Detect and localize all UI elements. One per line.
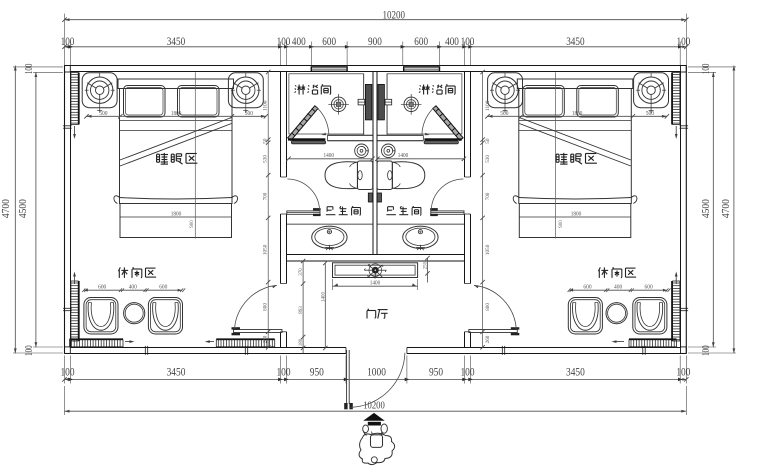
svg-text:800: 800 bbox=[485, 303, 491, 311]
svg-text:500: 500 bbox=[99, 111, 107, 117]
svg-text:100: 100 bbox=[461, 36, 475, 48]
svg-text:400: 400 bbox=[129, 285, 137, 291]
svg-text:100: 100 bbox=[677, 36, 691, 48]
svg-text:100: 100 bbox=[460, 364, 474, 378]
svg-text:370: 370 bbox=[298, 268, 304, 276]
svg-text:250: 250 bbox=[423, 261, 429, 269]
svg-text:1100: 1100 bbox=[485, 100, 491, 111]
svg-text:4500: 4500 bbox=[701, 199, 712, 218]
svg-text:100: 100 bbox=[61, 36, 75, 48]
svg-text:3450: 3450 bbox=[167, 364, 186, 378]
svg-text:1800: 1800 bbox=[171, 111, 182, 117]
svg-text:800: 800 bbox=[263, 303, 269, 311]
svg-text:400: 400 bbox=[445, 36, 459, 48]
svg-text:100: 100 bbox=[277, 36, 291, 48]
svg-text:10200: 10200 bbox=[363, 401, 385, 412]
svg-text:600: 600 bbox=[98, 285, 106, 291]
svg-text:1050: 1050 bbox=[485, 244, 491, 255]
svg-text:900: 900 bbox=[368, 36, 382, 48]
svg-text:900: 900 bbox=[189, 220, 195, 228]
svg-text:260: 260 bbox=[263, 335, 269, 343]
svg-text:700: 700 bbox=[485, 192, 491, 200]
svg-text:50: 50 bbox=[263, 138, 269, 144]
svg-text:1800: 1800 bbox=[572, 111, 583, 117]
svg-text:180: 180 bbox=[298, 338, 304, 346]
svg-text:500: 500 bbox=[245, 111, 253, 117]
svg-text:950: 950 bbox=[429, 364, 443, 378]
svg-text:4700: 4700 bbox=[721, 199, 732, 218]
svg-text:100: 100 bbox=[23, 345, 35, 356]
svg-text:1800: 1800 bbox=[571, 211, 582, 217]
svg-text:530: 530 bbox=[485, 155, 491, 163]
svg-text:3450: 3450 bbox=[167, 36, 186, 48]
svg-text:10200: 10200 bbox=[382, 7, 405, 21]
svg-text:100: 100 bbox=[276, 364, 290, 378]
svg-text:950: 950 bbox=[310, 364, 324, 378]
svg-text:1100: 1100 bbox=[263, 100, 269, 111]
svg-text:1400: 1400 bbox=[321, 292, 327, 302]
svg-text:100: 100 bbox=[700, 345, 712, 356]
svg-text:600: 600 bbox=[645, 285, 653, 291]
svg-text:400: 400 bbox=[614, 285, 622, 291]
svg-text:4500: 4500 bbox=[18, 199, 29, 218]
svg-text:400: 400 bbox=[292, 36, 306, 48]
svg-text:1000: 1000 bbox=[367, 364, 386, 378]
svg-text:50: 50 bbox=[485, 138, 491, 144]
svg-text:1800: 1800 bbox=[171, 211, 182, 217]
svg-text:500: 500 bbox=[500, 111, 508, 117]
svg-text:700: 700 bbox=[263, 192, 269, 200]
svg-text:1050: 1050 bbox=[263, 244, 269, 255]
svg-text:4700: 4700 bbox=[1, 199, 12, 218]
svg-text:530: 530 bbox=[263, 155, 269, 163]
svg-text:1400: 1400 bbox=[370, 280, 381, 286]
svg-text:900: 900 bbox=[558, 220, 564, 228]
svg-text:100: 100 bbox=[676, 364, 690, 378]
svg-text:600: 600 bbox=[414, 36, 428, 48]
svg-text:500: 500 bbox=[646, 111, 654, 117]
svg-text:600: 600 bbox=[583, 285, 591, 291]
svg-text:893: 893 bbox=[298, 306, 304, 314]
svg-text:1400: 1400 bbox=[324, 153, 335, 159]
svg-text:1400: 1400 bbox=[398, 153, 409, 159]
svg-text:3450: 3450 bbox=[566, 364, 585, 378]
svg-text:600: 600 bbox=[159, 285, 167, 291]
svg-text:600: 600 bbox=[322, 36, 336, 48]
svg-text:100: 100 bbox=[60, 364, 74, 378]
svg-text:3450: 3450 bbox=[566, 36, 585, 48]
svg-text:260: 260 bbox=[485, 335, 491, 343]
